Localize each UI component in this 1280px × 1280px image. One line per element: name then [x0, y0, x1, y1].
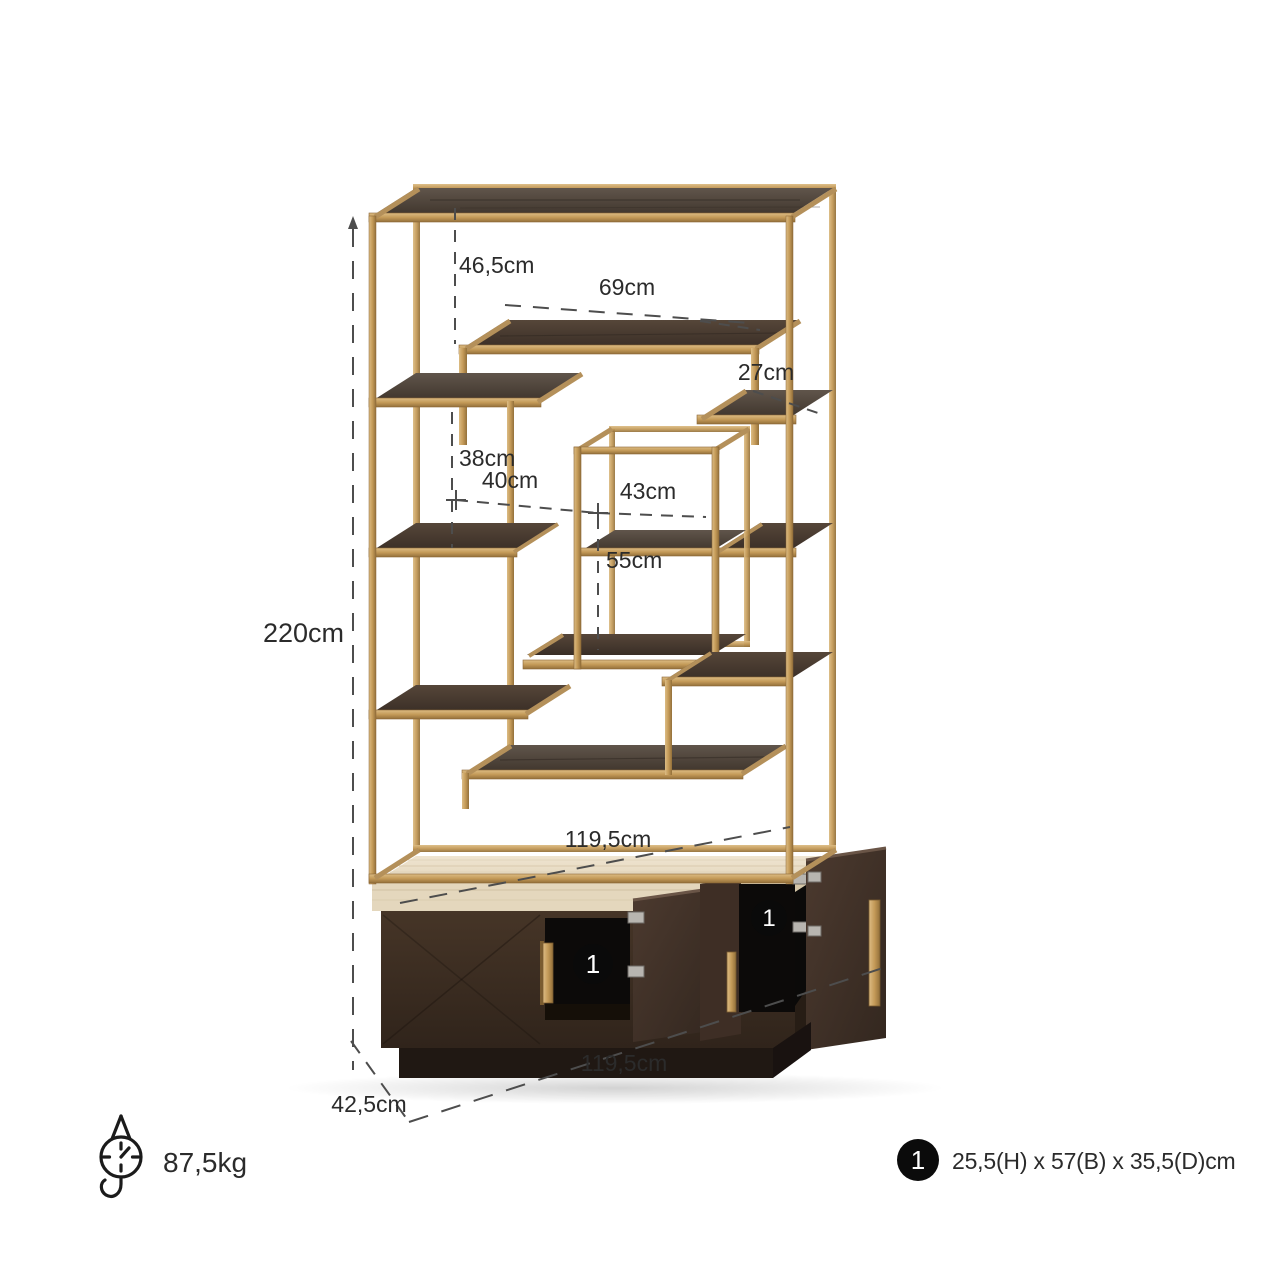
weight-label: 87,5kg [163, 1147, 247, 1178]
dim-overall-width-label: 119,5cm [581, 1050, 668, 1076]
svg-text:1: 1 [586, 949, 600, 979]
cross-tick-left [446, 490, 466, 510]
legend-text: 25,5(H) x 57(B) x 35,5(D)cm [952, 1148, 1235, 1174]
dim-inner-width-label: 119,5cm [565, 826, 652, 852]
left-compartment-badge: 1 [573, 944, 613, 984]
furniture-dimension-diagram: 1 1 [0, 0, 1280, 1280]
low-wide-shelf [462, 745, 786, 809]
right-compartment-badge: 1 [751, 900, 787, 936]
legend: 1 25,5(H) x 57(B) x 35,5(D)cm [897, 1139, 1235, 1181]
dim-cube-height-label: 55cm [606, 547, 662, 573]
upper-left-shelf [369, 373, 582, 407]
middle-door-handle[interactable] [727, 952, 736, 1012]
middle-left-shelf [369, 523, 558, 557]
dim-bridge-width-label: 69cm [599, 274, 655, 300]
right-open-door[interactable] [806, 848, 886, 1050]
dim-depth-label: 42,5cm [331, 1091, 406, 1117]
weight-info: 87,5kg [101, 1116, 247, 1196]
hanging-scale-icon [101, 1116, 141, 1196]
dim-height-label: 220cm [263, 618, 344, 648]
lower-right-shelf-leg [665, 680, 672, 775]
dim-top-gap-label: 46,5cm [459, 252, 534, 278]
dim-cube-width-label: 43cm [620, 478, 676, 504]
svg-text:1: 1 [762, 905, 775, 932]
left-door-handle[interactable] [543, 943, 553, 1003]
top-shelf [369, 188, 836, 222]
right-open-door-handle[interactable] [869, 900, 880, 1006]
arrow-up-icon [348, 216, 358, 229]
middle-right-shelf [713, 523, 833, 557]
dim-step-label: 27cm [738, 359, 794, 385]
dim-left-shelf-width-label: 40cm [482, 467, 538, 493]
upper-right-shelf [697, 390, 833, 424]
low-shelf-left-stub [462, 773, 469, 809]
legend-badge-number: 1 [911, 1145, 925, 1175]
lower-left-shelf [369, 685, 570, 719]
